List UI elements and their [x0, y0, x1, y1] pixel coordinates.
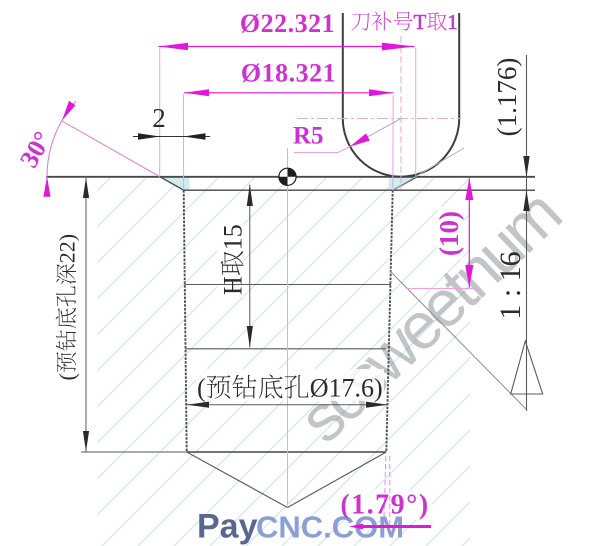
svg-text:(: ( — [54, 373, 79, 380]
svg-text:Ø18.321: Ø18.321 — [241, 59, 336, 88]
svg-text:H: H — [219, 276, 248, 295]
svg-text:2: 2 — [152, 103, 166, 133]
svg-text:(10): (10) — [434, 211, 464, 256]
svg-text:(1.176): (1.176) — [492, 58, 522, 137]
svg-text:Ø22.321: Ø22.321 — [240, 9, 335, 38]
svg-text:22): 22) — [54, 234, 79, 263]
svg-text:15: 15 — [219, 224, 248, 250]
svg-text:1: 1 — [447, 10, 458, 34]
svg-text:R5: R5 — [293, 123, 324, 150]
svg-text:1 : 16: 1 : 16 — [494, 251, 527, 319]
svg-text:(: ( — [197, 374, 206, 403]
svg-text:T: T — [414, 10, 427, 34]
svg-text:Ø17.6): Ø17.6) — [310, 374, 383, 403]
svg-text:Pay: Pay — [197, 508, 258, 546]
svg-text:(1.79°): (1.79°) — [340, 490, 429, 521]
